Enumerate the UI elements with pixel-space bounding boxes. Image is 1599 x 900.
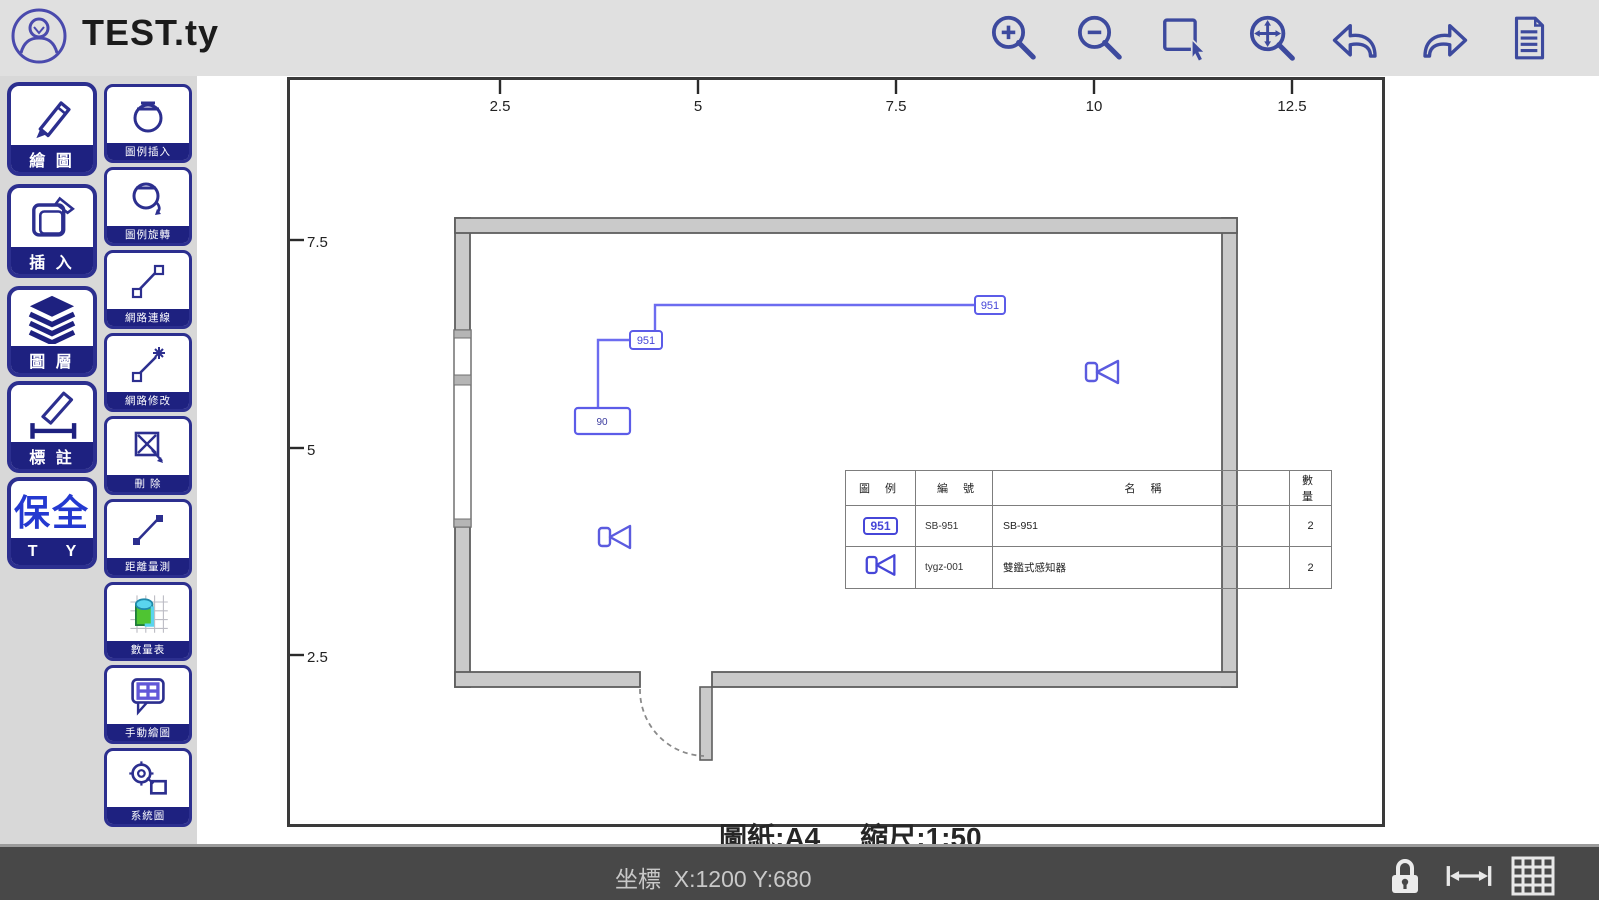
wire-connect-icon (107, 253, 189, 309)
legend-name: 雙鑑式感知器 (993, 547, 1290, 589)
ruler-tick-label: 2.5 (490, 98, 511, 115)
legend-rotate-button[interactable]: 圖例旋轉 (104, 167, 192, 246)
zoom-extents-icon (1243, 11, 1299, 65)
redo-icon (1415, 11, 1471, 65)
status-bar: 坐標 X:1200 Y:680 (0, 844, 1599, 900)
insert-tool-label: 插 入 (11, 247, 93, 274)
draw-tool-label: 繪 圖 (11, 145, 93, 172)
wall-bottom-right (712, 672, 1237, 687)
device-951-a[interactable]: 951 (975, 296, 1005, 314)
device-951-b-label: 951 (637, 335, 655, 347)
quantity-table-button[interactable]: 數量表 (104, 582, 192, 661)
wire-connect-label: 網路連線 (107, 309, 189, 326)
ruler-tick-label: 7.5 (307, 234, 328, 251)
measure-button[interactable] (1445, 855, 1493, 897)
legend-rotate-label: 圖例旋轉 (107, 226, 189, 243)
draw-tool-button[interactable]: 繪 圖 (7, 82, 97, 176)
security-label: 保全 (11, 481, 93, 538)
zoom-out-button[interactable] (1071, 10, 1127, 66)
table-row: tygz-001 雙鑑式感知器 2 (846, 547, 1332, 589)
tool-sidebar: 繪 圖 插 入 圖 層 (0, 76, 197, 844)
legend-header-name: 名 稱 (993, 471, 1290, 506)
app-logo-icon (10, 7, 68, 65)
wire-connect-button[interactable]: 網路連線 (104, 250, 192, 329)
coordinate-readout: 坐標 X:1200 Y:680 (615, 860, 812, 894)
ruler-tick-label: 12.5 (1277, 98, 1306, 115)
zoom-window-icon (1157, 11, 1213, 65)
ruler-tick-label: 5 (307, 442, 315, 459)
grid-button[interactable] (1509, 855, 1557, 897)
ruler-tick-label: 10 (1086, 98, 1103, 115)
security-mode-button[interactable]: 保全 T Y (7, 477, 97, 569)
legend-header-code: 編 號 (916, 471, 993, 506)
dimension-icon (11, 385, 93, 442)
dimension-tool-label: 標 註 (11, 442, 93, 469)
system-diagram-label: 系統圖 (107, 807, 189, 824)
layers-icon (11, 290, 93, 346)
distance-measure-button[interactable]: 距離量測 (104, 499, 192, 578)
zoom-out-icon (1072, 11, 1126, 65)
top-toolbar: TEST.ty (0, 0, 1599, 76)
zoom-window-button[interactable] (1157, 10, 1213, 66)
wire-edit-icon (107, 336, 189, 392)
distance-measure-label: 距離量測 (107, 558, 189, 575)
drawing-sheet: 2.5 5 7.5 10 12.5 7.5 5 2.5 (287, 77, 1385, 827)
legend-name: SB-951 (993, 506, 1290, 547)
wire-edit-button[interactable]: 網路修改 (104, 333, 192, 412)
legend-symbol-951: 951 (863, 517, 897, 535)
wall-bottom-left (455, 672, 640, 687)
undo-button[interactable] (1329, 10, 1385, 66)
zoom-in-icon (986, 11, 1040, 65)
legend-insert-label: 圖例插入 (107, 143, 189, 160)
manual-draw-label: 手動繪圖 (107, 724, 189, 741)
legend-code: SB-951 (916, 506, 993, 547)
manual-draw-icon (107, 668, 189, 724)
legend-insert-button[interactable]: 圖例插入 (104, 84, 192, 163)
wall-top (455, 218, 1237, 233)
ruler-tick-label: 2.5 (307, 649, 328, 666)
table-row: 951 SB-951 SB-951 2 (846, 506, 1332, 547)
control-panel-box[interactable]: 90 (575, 408, 630, 434)
device-951-b[interactable]: 951 (630, 331, 662, 349)
sheet-border (289, 79, 1384, 826)
grid-icon (1510, 855, 1556, 897)
quantity-table-icon (107, 585, 189, 641)
legend-header-symbol: 圖 例 (846, 471, 916, 506)
wire-edit-label: 網路修改 (107, 392, 189, 409)
window-symbol (454, 330, 471, 527)
pencil-icon (11, 86, 93, 145)
measure-icon (1445, 861, 1493, 891)
layers-tool-label: 圖 層 (11, 346, 93, 373)
lock-button[interactable] (1381, 855, 1429, 897)
delete-tool-button[interactable]: 刪 除 (104, 416, 192, 495)
device-951-a-label: 951 (981, 300, 999, 312)
legend-code: tygz-001 (916, 547, 993, 589)
app-window: TEST.ty (0, 0, 1599, 900)
layers-tool-button[interactable]: 圖 層 (7, 286, 97, 377)
delete-icon (107, 419, 189, 475)
control-panel-label: 90 (596, 417, 608, 428)
insert-tool-button[interactable]: 插 入 (7, 184, 97, 278)
ruler-tick-label: 5 (694, 98, 702, 115)
legend-qty: 2 (1290, 506, 1332, 547)
legend-symbol-bowtie (865, 554, 897, 576)
ruler-tick-label: 7.5 (886, 98, 907, 115)
zoom-extents-button[interactable] (1243, 10, 1299, 66)
legend-qty: 2 (1290, 547, 1332, 589)
manual-draw-button[interactable]: 手動繪圖 (104, 665, 192, 744)
legend-rotate-icon (107, 170, 189, 226)
system-diagram-icon (107, 751, 189, 807)
distance-measure-icon (107, 502, 189, 558)
security-ty-label: T Y (11, 538, 93, 565)
document-title: TEST.ty (82, 12, 219, 54)
zoom-in-button[interactable] (985, 10, 1041, 66)
legend-header-qty: 數 量 (1290, 471, 1332, 506)
lock-icon (1386, 856, 1424, 896)
legend-insert-icon (107, 87, 189, 143)
door-leaf (700, 687, 712, 760)
legend-table: 圖 例 編 號 名 稱 數 量 951 SB-951 SB-951 2 tygz… (845, 470, 1332, 589)
document-list-button[interactable] (1501, 10, 1557, 66)
system-diagram-button[interactable]: 系統圖 (104, 748, 192, 827)
insert-icon (11, 188, 93, 247)
delete-tool-label: 刪 除 (107, 475, 189, 492)
dimension-tool-button[interactable]: 標 註 (7, 381, 97, 473)
wall-right (1222, 218, 1237, 687)
document-icon (1504, 11, 1554, 65)
quantity-table-label: 數量表 (107, 641, 189, 658)
redo-button[interactable] (1415, 10, 1471, 66)
undo-icon (1329, 11, 1385, 65)
